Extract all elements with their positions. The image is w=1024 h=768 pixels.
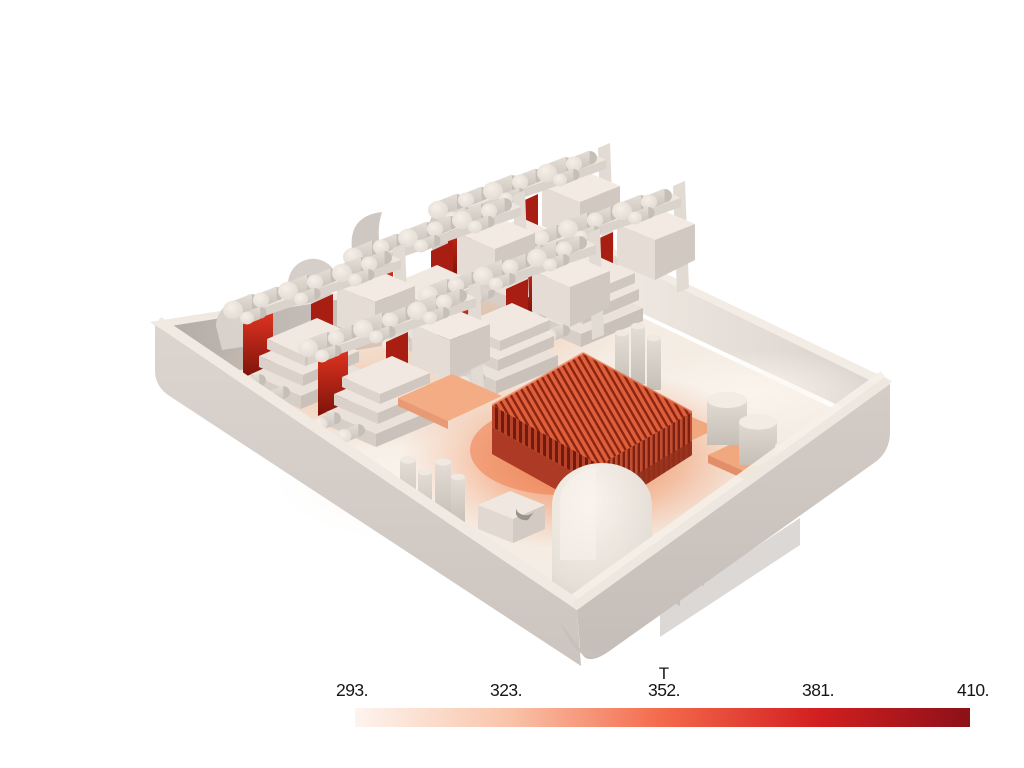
colorbar-tick-label: 323. — [474, 680, 538, 701]
colorbar-tick-label: 410. — [941, 680, 1005, 701]
colorbar-gradient — [355, 708, 970, 727]
render-viewport: T 293. 323. 352. 381. 410. — [0, 0, 1024, 768]
colorbar-tick-label: 293. — [320, 680, 384, 701]
scene-3d — [0, 0, 1024, 768]
colorbar-tick-label: 381. — [786, 680, 850, 701]
colorbar-tick-label: 352. — [632, 680, 696, 701]
colorbar: T 293. 323. 352. 381. 410. — [0, 664, 1024, 754]
